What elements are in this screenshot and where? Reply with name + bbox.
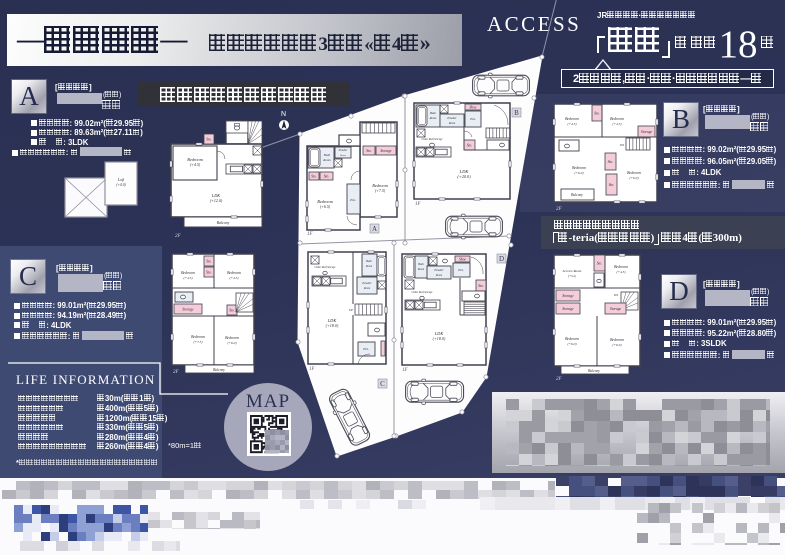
svg-text:Storage: Storage <box>610 307 622 311</box>
svg-text:(+12.0): (+12.0) <box>210 198 223 203</box>
svg-text:C: C <box>380 380 385 388</box>
svg-text:(+4.5): (+4.5) <box>190 162 201 167</box>
svg-text:Room: Room <box>363 287 370 290</box>
svg-text:Storage: Storage <box>380 149 392 153</box>
svg-text:(+6.0): (+6.0) <box>629 176 639 180</box>
svg-text:Storage: Storage <box>562 307 574 311</box>
svg-text:2F: 2F <box>556 377 563 382</box>
svg-text:Room: Room <box>417 268 424 271</box>
svg-text:UP: UP <box>349 308 353 312</box>
svg-text:Bedroom: Bedroom <box>565 117 579 121</box>
svg-text:Sto.: Sto. <box>608 160 614 164</box>
svg-text:(+6.0): (+6.0) <box>567 342 577 346</box>
svg-text:(+4.5): (+4.5) <box>567 122 577 126</box>
svg-text:Bedroom: Bedroom <box>627 171 641 175</box>
svg-text:Powder: Powder <box>446 116 457 120</box>
svg-text:Sto.: Sto. <box>609 183 615 187</box>
svg-text:Bedroom: Bedroom <box>572 166 586 170</box>
svg-text:Sto.: Sto. <box>311 175 317 179</box>
svg-text:Ent.: Ent. <box>349 198 356 202</box>
svg-text:Storage: Storage <box>562 294 574 298</box>
svg-text:Storage: Storage <box>182 308 194 312</box>
svg-text:(+18.0): (+18.0) <box>433 336 446 341</box>
svg-text:Balcony: Balcony <box>588 369 600 373</box>
svg-text:D: D <box>499 255 504 263</box>
svg-text:2F: 2F <box>175 234 182 239</box>
svg-text:2F: 2F <box>556 207 563 212</box>
svg-text:N: N <box>281 111 286 118</box>
svg-text:Bath: Bath <box>324 153 331 157</box>
svg-text:Sto.: Sto. <box>206 260 212 264</box>
svg-text:Sto.: Sto. <box>324 175 330 179</box>
svg-text:Sto.: Sto. <box>478 284 484 288</box>
svg-text:MAP: MAP <box>246 391 290 412</box>
svg-text:Sto.: Sto. <box>229 309 235 313</box>
svg-text:Sto.: Sto. <box>206 271 212 275</box>
svg-text:(+4.5): (+4.5) <box>612 122 622 126</box>
svg-text:Balcony: Balcony <box>571 193 583 197</box>
svg-text:Ent.: Ent. <box>362 347 369 351</box>
svg-text:(+4.0): (+4.0) <box>116 183 126 187</box>
svg-text:A: A <box>372 225 377 233</box>
svg-text:Balcony: Balcony <box>213 368 225 372</box>
svg-text:Bedroom: Bedroom <box>614 265 628 269</box>
svg-text:(+6.0): (+6.0) <box>574 171 584 175</box>
svg-text:Room: Room <box>448 122 455 125</box>
svg-text:Shoe: Shoe <box>470 106 477 110</box>
svg-text:Bedroom: Bedroom <box>565 337 579 341</box>
svg-text:Bedroom: Bedroom <box>610 338 624 342</box>
svg-text:Bath: Bath <box>366 259 372 263</box>
svg-text:Bedroom: Bedroom <box>181 271 195 275</box>
svg-text:(+6.0): (+6.0) <box>612 343 622 347</box>
svg-text:Sto.: Sto. <box>594 112 600 116</box>
svg-text:Room: Room <box>435 274 442 277</box>
svg-text:Ent.: Ent. <box>457 268 464 272</box>
svg-text:Bedroom: Bedroom <box>610 117 624 121</box>
svg-text:(+7.5): (+7.5) <box>375 188 386 193</box>
svg-text:2F: 2F <box>173 370 180 375</box>
svg-text:(+5.2): (+5.2) <box>568 274 576 278</box>
svg-text:Bath: Bath <box>418 262 424 266</box>
svg-text:Sto.: Sto. <box>366 149 372 153</box>
svg-text:Powder: Powder <box>433 268 444 272</box>
svg-text:Room: Room <box>429 116 437 120</box>
svg-text:1F: 1F <box>307 232 314 237</box>
svg-text:Powder: Powder <box>338 149 349 152</box>
svg-text:(+4.5): (+4.5) <box>616 270 626 274</box>
svg-text:Bedroom: Bedroom <box>227 271 241 275</box>
svg-text:Bedroom: Bedroom <box>225 336 239 340</box>
svg-text:Service Room: Service Room <box>563 269 582 273</box>
svg-text:(+6.5): (+6.5) <box>320 204 331 209</box>
svg-text:Powder: Powder <box>361 281 372 285</box>
svg-text:1F: 1F <box>309 367 316 372</box>
svg-text:(+4.5): (+4.5) <box>183 276 193 280</box>
svg-text:(+18.0): (+18.0) <box>326 323 339 328</box>
svg-text:Ent.: Ent. <box>469 117 476 121</box>
svg-text:Sto.: Sto. <box>467 144 473 148</box>
svg-text:Loft: Loft <box>117 177 125 182</box>
svg-text:(+20.0): (+20.0) <box>457 174 471 179</box>
svg-text:(+7.5): (+7.5) <box>193 340 203 344</box>
svg-text:Under Roof Storage: Under Roof Storage <box>412 291 434 294</box>
svg-text:1F: 1F <box>402 368 409 373</box>
svg-text:Room: Room <box>339 154 346 157</box>
svg-text:Bath: Bath <box>430 111 436 115</box>
svg-text:(+4.5): (+4.5) <box>229 276 239 280</box>
svg-text:Room: Room <box>365 265 372 268</box>
svg-text:Under Roof Storage: Under Roof Storage <box>422 138 444 141</box>
svg-text:Sto.: Sto. <box>597 262 603 266</box>
svg-text:1F: 1F <box>415 202 422 207</box>
svg-text:Storage: Storage <box>641 130 653 134</box>
svg-text:Bedroom: Bedroom <box>191 335 205 339</box>
svg-text:Balcony: Balcony <box>217 221 230 225</box>
svg-text:B: B <box>514 109 519 117</box>
svg-text:Room: Room <box>322 158 331 162</box>
svg-text:Under Roof Storage: Under Roof Storage <box>315 266 337 269</box>
svg-text:(+6.0): (+6.0) <box>227 341 237 345</box>
svg-text:Shoe: Shoe <box>459 258 466 262</box>
svg-text:Sto.: Sto. <box>206 138 212 142</box>
